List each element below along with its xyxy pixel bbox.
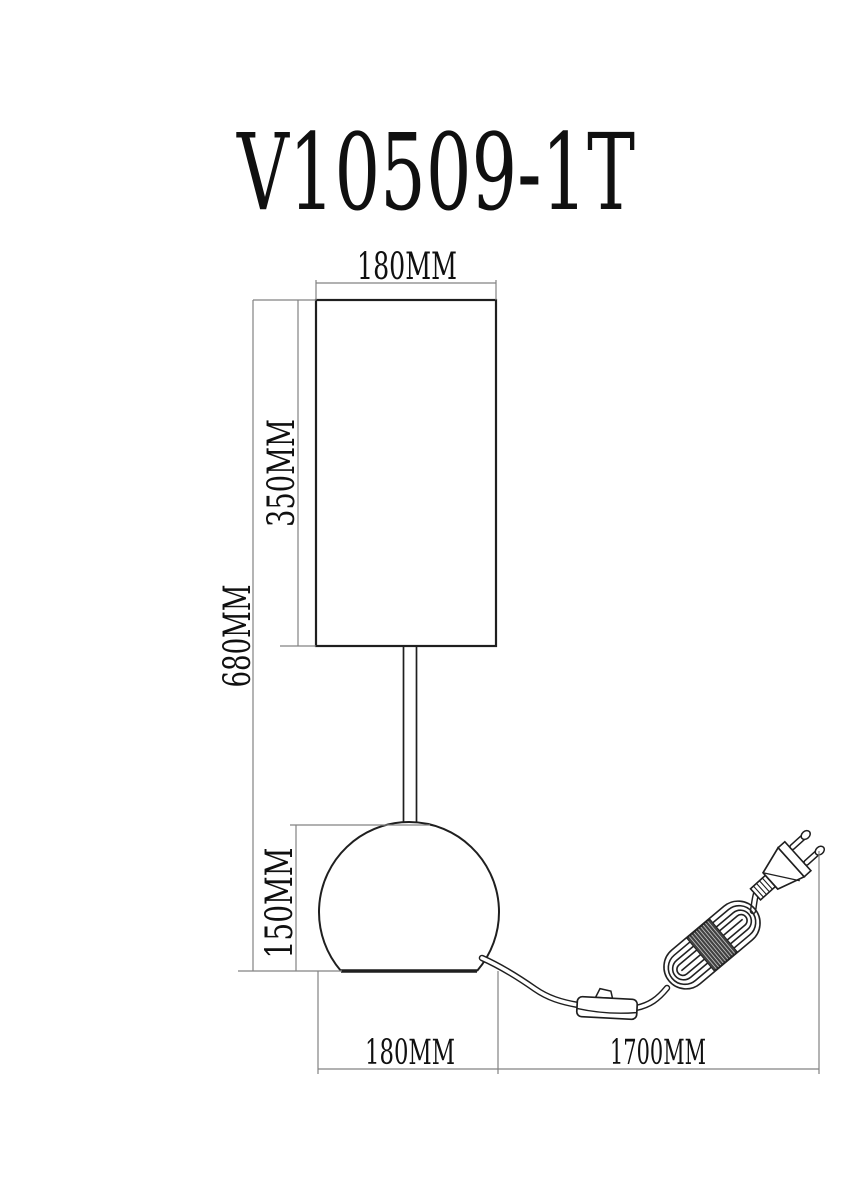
product-code-title: V10509-1T xyxy=(236,111,635,234)
power-cord-segment-1-core xyxy=(482,958,578,1005)
drawing-page: V10509-1T xyxy=(0,0,848,1200)
dim-shade-height: 350MM xyxy=(253,300,316,646)
dim-shade-width: 180MM xyxy=(316,245,496,300)
dim-label-cord-length: 1700MM xyxy=(610,1033,706,1073)
dim-label-shade-height: 350MM xyxy=(260,419,303,527)
cord-switch xyxy=(577,987,638,1019)
dim-label-total-height: 680MM xyxy=(216,585,259,688)
lampshade-outline xyxy=(316,300,496,646)
dim-label-base-width: 180MM xyxy=(365,1033,455,1073)
dim-label-base-height: 150MM xyxy=(258,848,301,959)
lamp-technical-drawing: V10509-1T xyxy=(0,0,848,1200)
dim-label-shade-width: 180MM xyxy=(357,245,457,288)
switch-body xyxy=(577,996,638,1019)
dim-base-width: 180MM xyxy=(318,971,498,1074)
sphere-base-outline xyxy=(319,822,499,971)
